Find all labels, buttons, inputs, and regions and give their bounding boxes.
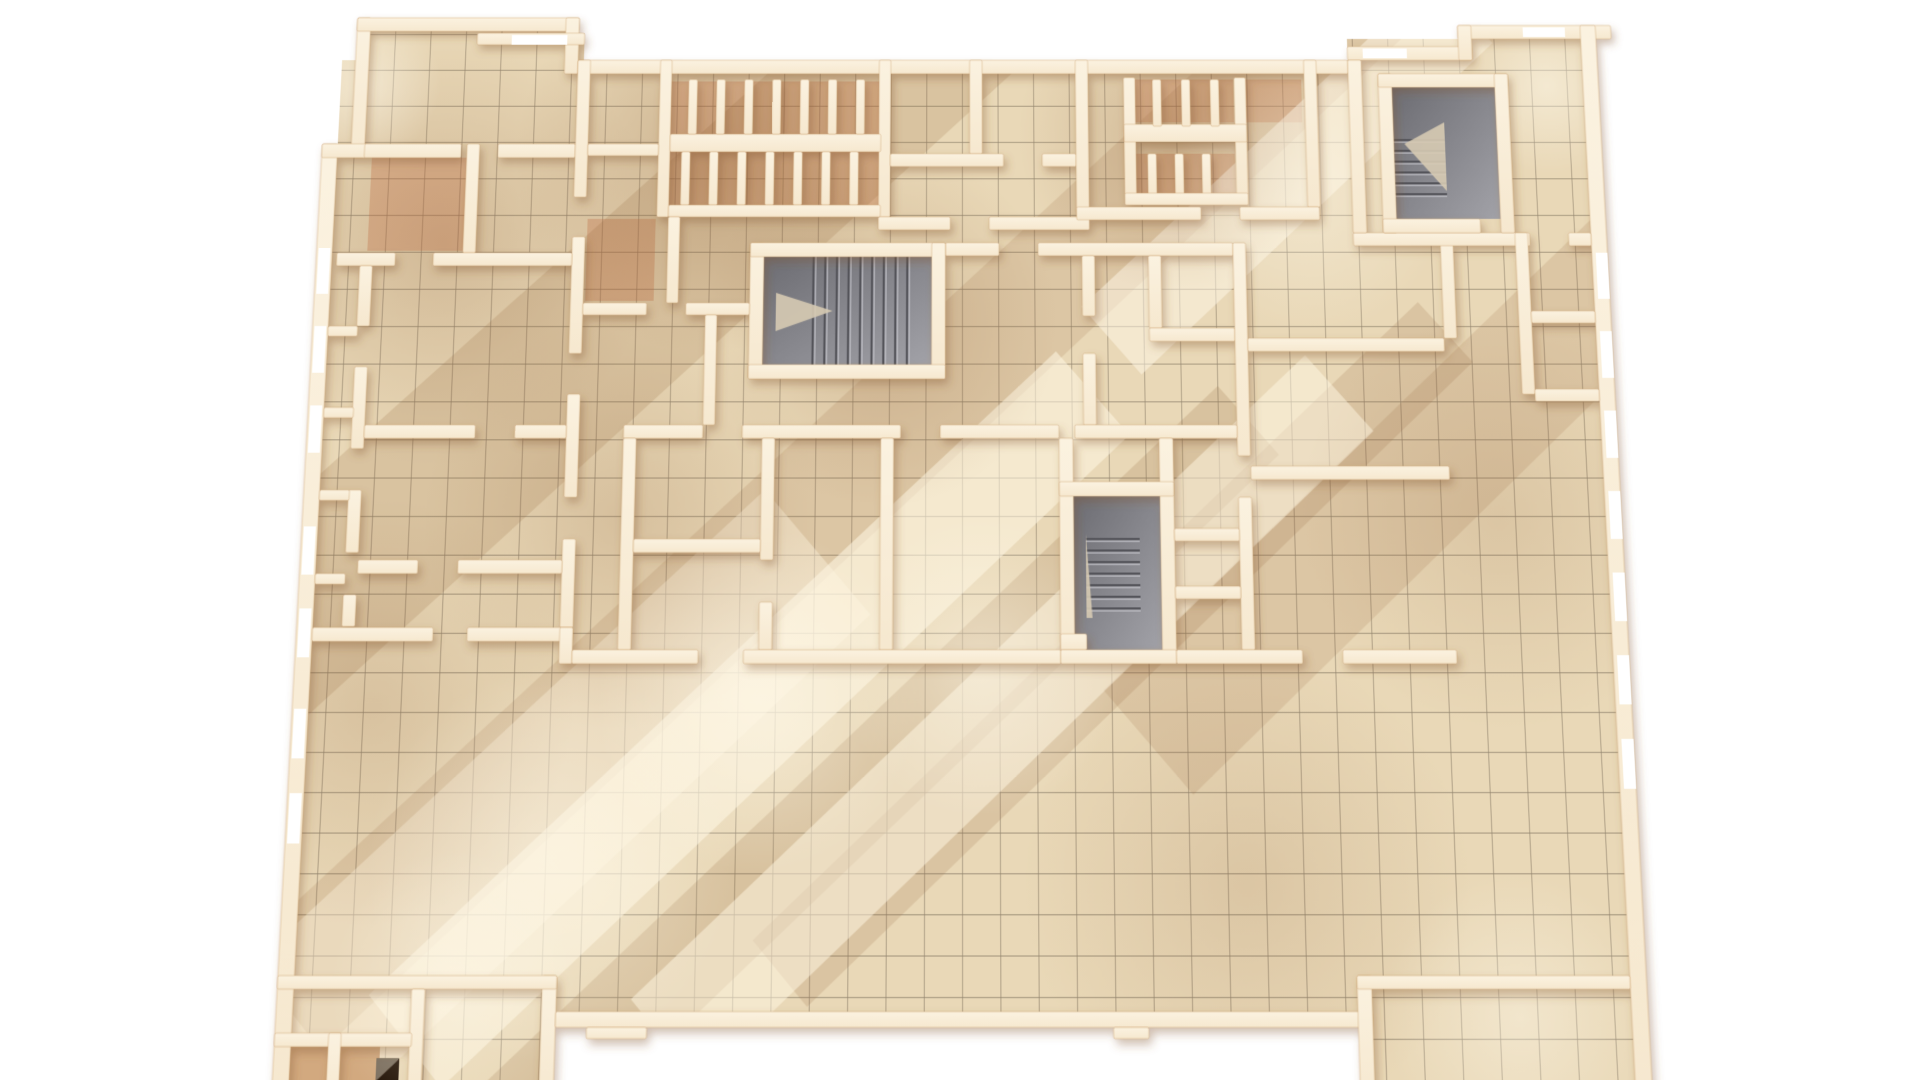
wall-segment — [772, 80, 782, 135]
floor-plan-render — [0, 0, 1920, 1080]
stairwell-center — [762, 257, 932, 365]
wall-segment — [708, 152, 718, 205]
wall-segment — [342, 595, 357, 627]
wall-segment — [588, 144, 659, 156]
stair-tread-highlight — [874, 257, 875, 365]
wall-segment — [322, 144, 367, 158]
wall-segment — [1061, 634, 1087, 650]
wall-segment — [467, 627, 573, 641]
wall-segment — [856, 80, 865, 135]
wall-segment — [336, 253, 395, 266]
wall-segment — [1075, 425, 1237, 438]
wall-segment — [688, 80, 698, 135]
wall-notch — [512, 35, 568, 45]
wall-segment — [849, 152, 858, 205]
wall-segment — [1383, 219, 1481, 233]
wall-segment — [274, 1033, 412, 1047]
wall-segment — [931, 243, 945, 379]
wall-segment — [1125, 193, 1248, 205]
wall-segment — [1077, 207, 1202, 220]
wall-segment — [879, 438, 893, 650]
wall-segment — [1149, 328, 1235, 341]
wall-segment — [1343, 650, 1457, 664]
wall-segment — [1240, 207, 1320, 220]
wall-segment — [560, 539, 576, 628]
wall-segment — [666, 217, 680, 303]
stair-tread — [848, 257, 849, 365]
wall-segment — [793, 152, 802, 205]
window-slot — [1596, 253, 1610, 299]
wall-segment — [1124, 124, 1247, 142]
wall-notch — [1363, 49, 1407, 59]
wall-segment — [319, 490, 349, 500]
wall-segment — [878, 217, 950, 230]
wall-segment — [750, 243, 945, 257]
wall-segment — [1177, 650, 1303, 664]
wall-segment — [583, 303, 647, 315]
wall-segment — [1357, 976, 1631, 989]
wall-segment — [1114, 1027, 1149, 1038]
stair-tread — [883, 257, 884, 365]
floor-plan-svg — [0, 0, 1920, 1080]
wall-segment — [828, 80, 837, 135]
wall-segment — [800, 80, 809, 135]
wall-segment — [578, 60, 1348, 74]
wall-segment — [1075, 60, 1089, 217]
wall-segment — [1152, 80, 1161, 127]
wall-segment — [1202, 154, 1212, 195]
wall-segment — [686, 303, 750, 315]
wall-segment — [1082, 256, 1095, 316]
wall-segment — [1535, 389, 1600, 401]
wall-segment — [760, 438, 775, 560]
wall-segment — [970, 60, 983, 154]
wall-segment — [737, 152, 747, 205]
wall-segment — [1457, 25, 1472, 60]
wall-segment — [759, 602, 773, 650]
wall-segment — [357, 18, 579, 31]
wall-segment — [742, 425, 900, 438]
wall-segment — [1059, 482, 1174, 497]
wall-segment — [716, 80, 726, 135]
wall-segment — [1042, 154, 1076, 167]
wall-segment — [1175, 586, 1240, 599]
window-slot — [316, 248, 330, 294]
window-slot — [312, 326, 326, 373]
wall-segment — [748, 365, 945, 379]
wall-segment — [940, 425, 1059, 438]
wall-segment — [748, 243, 764, 379]
wall-segment — [324, 407, 354, 417]
stair-tread-highlight — [897, 257, 898, 365]
wall-segment — [315, 574, 346, 585]
wall-segment — [1181, 80, 1191, 127]
wall-segment — [1175, 154, 1184, 195]
wall-segment — [564, 18, 579, 74]
wall-segment — [1251, 466, 1450, 479]
stairwell-bottom-center — [1073, 496, 1162, 650]
wall-segment — [586, 1027, 647, 1038]
stair-tread — [836, 257, 837, 365]
wall-segment — [1148, 256, 1162, 328]
wall-segment — [357, 560, 418, 574]
wall-segment — [312, 627, 433, 641]
wall-segment — [989, 217, 1089, 230]
wall-segment — [668, 205, 880, 217]
wall-segment — [1038, 243, 1233, 256]
wall-segment — [555, 1012, 1373, 1028]
wall-notch — [1523, 27, 1566, 37]
perspective-wrapper — [0, 0, 1920, 1080]
wall-segment — [364, 144, 461, 158]
wall-segment — [623, 425, 702, 438]
wall-segment — [680, 152, 690, 205]
wall-segment — [433, 253, 572, 266]
wall-segment — [670, 134, 881, 152]
wall-segment — [572, 650, 698, 664]
wall-segment — [1148, 154, 1157, 195]
window-slot — [1600, 331, 1614, 378]
stair-tread — [860, 257, 861, 365]
stair-tread — [895, 257, 896, 365]
wall-segment — [1353, 233, 1530, 246]
wall-segment — [559, 627, 573, 663]
stairwell-top-right — [1392, 87, 1501, 219]
wall-segment — [1174, 528, 1239, 541]
wall-segment — [1059, 438, 1075, 653]
wall-segment — [1248, 338, 1445, 351]
wall-segment — [945, 243, 999, 256]
wall-segment — [1568, 233, 1591, 246]
stair-tread — [871, 257, 872, 365]
wall-segment — [743, 650, 1061, 664]
wall-segment — [1210, 80, 1220, 127]
wall-segment — [1378, 74, 1508, 88]
wall-segment — [514, 425, 566, 438]
window-slot — [308, 405, 322, 452]
wall-segment — [744, 80, 754, 135]
stair-tread-highlight — [885, 257, 886, 365]
wall-segment — [1531, 311, 1595, 323]
wall-segment — [277, 976, 557, 989]
wall-segment — [357, 266, 373, 326]
wall-segment — [458, 560, 563, 574]
wall-segment — [821, 152, 830, 205]
wall-segment — [633, 539, 760, 553]
wall-segment — [498, 144, 576, 158]
wall-segment — [703, 315, 717, 425]
wall-segment — [364, 425, 475, 438]
wall-segment — [765, 152, 775, 205]
wall-segment — [1061, 650, 1177, 664]
wall-segment — [328, 326, 358, 336]
wall-segment — [890, 154, 1003, 167]
wall-segment — [1083, 353, 1097, 424]
